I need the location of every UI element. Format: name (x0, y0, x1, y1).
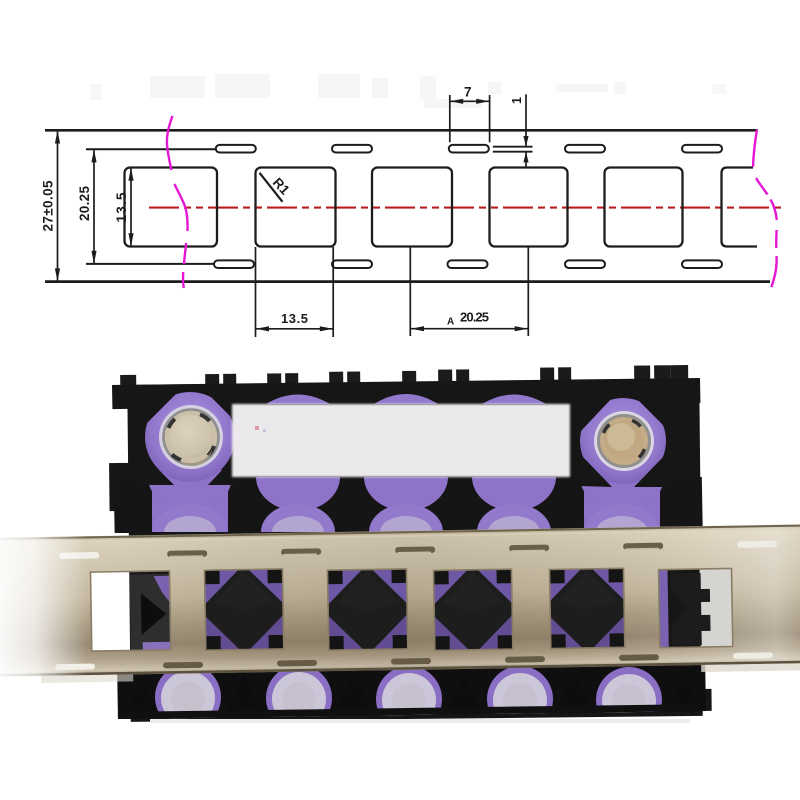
svg-text:20.25: 20.25 (460, 310, 489, 325)
svg-text:27±0.05: 27±0.05 (41, 180, 56, 231)
svg-text:13.5: 13.5 (281, 311, 308, 326)
svg-text:20.25: 20.25 (77, 186, 92, 221)
svg-text:1: 1 (510, 97, 524, 104)
svg-text:A: A (447, 317, 454, 328)
svg-text:13.5: 13.5 (114, 192, 129, 222)
svg-text:7: 7 (464, 85, 472, 100)
